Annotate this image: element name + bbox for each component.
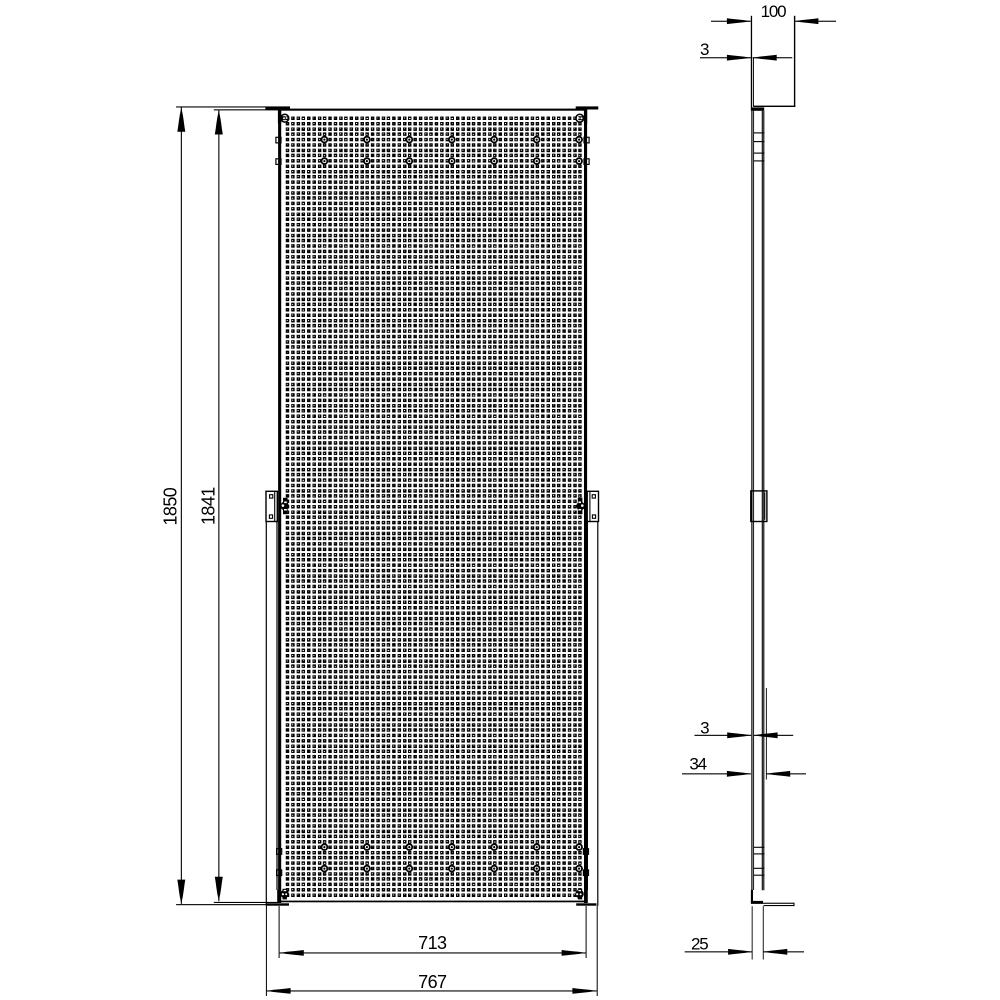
svg-text:713: 713 — [418, 933, 447, 953]
svg-text:1841: 1841 — [198, 487, 218, 525]
svg-text:25: 25 — [691, 934, 708, 953]
svg-text:1850: 1850 — [161, 487, 181, 525]
svg-text:100: 100 — [761, 2, 787, 21]
svg-text:767: 767 — [418, 972, 447, 992]
svg-text:3: 3 — [700, 719, 709, 738]
svg-text:3: 3 — [700, 40, 709, 59]
svg-text:34: 34 — [689, 754, 706, 773]
